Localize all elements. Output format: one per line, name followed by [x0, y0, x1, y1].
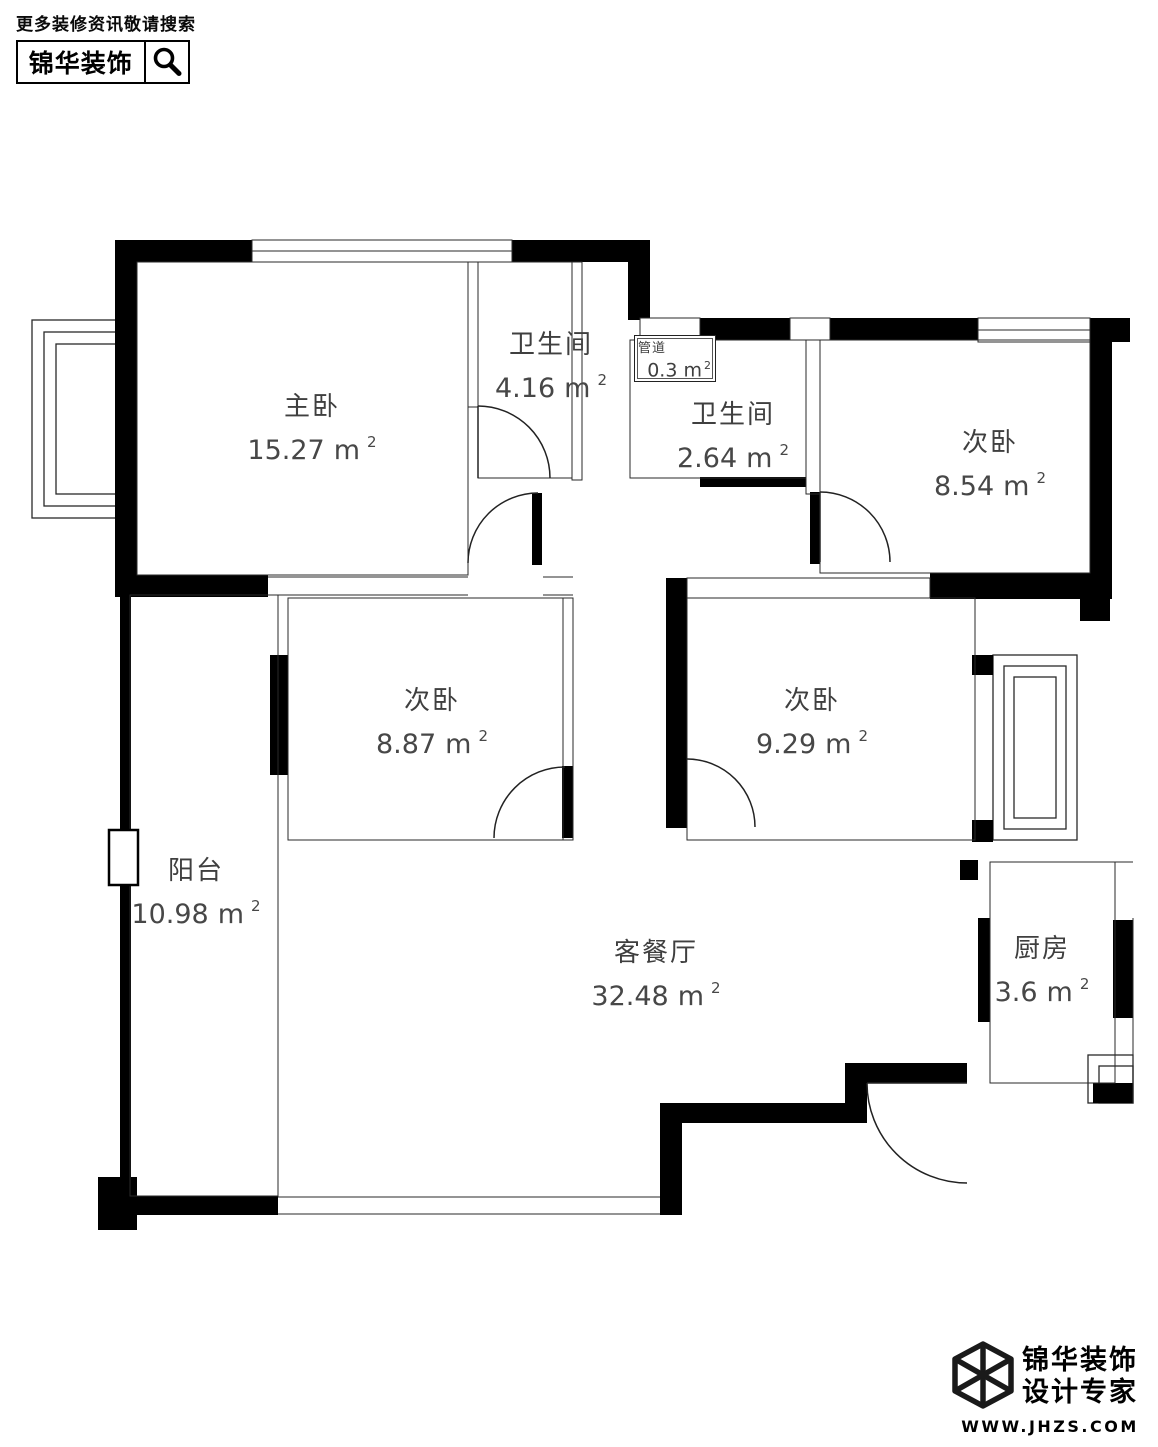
room-label-bedroom-4: 次卧 9.29m2 [756, 686, 868, 761]
bay-window-left [32, 320, 120, 518]
footer-brand-line1: 锦华装饰 [1022, 1345, 1138, 1377]
room-label-bathroom-1: 卫生间 4.16m2 [495, 330, 607, 405]
windows [252, 240, 1090, 598]
footer-website: WWW.JHZS.COM [950, 1417, 1150, 1436]
floor-plan-page: 更多装修资讯敬请搜索 锦华装饰 [0, 0, 1158, 1447]
walls [98, 240, 1133, 1230]
footer-brand-line2: 设计专家 [1022, 1377, 1138, 1409]
room-label-bedroom-3: 次卧 8.87m2 [376, 686, 488, 761]
room-label-living-dining: 客餐厅 32.48m2 [591, 938, 720, 1013]
room-label-bedroom-2: 次卧 8.54m2 [934, 428, 1046, 503]
room-label-master-bedroom: 主卧 15.27m2 [247, 392, 376, 467]
floor-plan-drawing [0, 0, 1158, 1447]
room-label-kitchen: 厨房 3.6m2 [995, 934, 1090, 1009]
room-label-duct: 管道 0.3 m2 [634, 335, 716, 382]
room-label-bathroom-2: 卫生间 2.64m2 [677, 400, 789, 475]
room-label-balcony: 阳台 10.98m2 [131, 856, 260, 931]
bay-window-right [993, 655, 1077, 840]
footer-logo-block: 锦华装饰 设计专家 WWW.JHZS.COM [950, 1340, 1150, 1436]
cube-logo-icon [950, 1340, 1016, 1414]
